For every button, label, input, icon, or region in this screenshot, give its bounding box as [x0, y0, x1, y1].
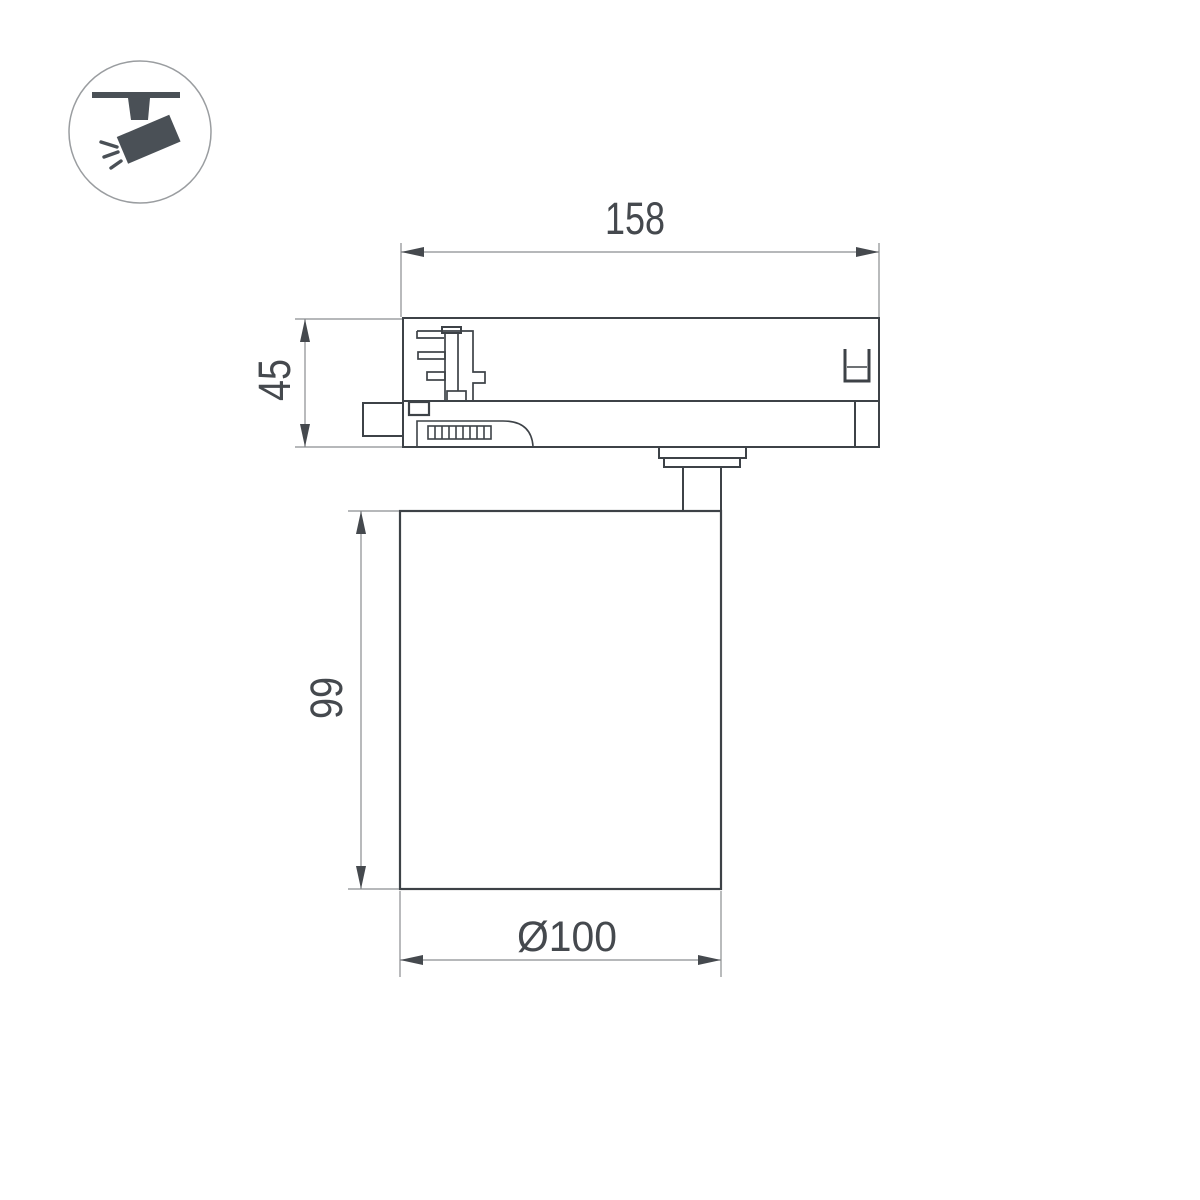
adapter-contact-block: [417, 327, 485, 401]
dimension-adapter-height: 45: [249, 319, 402, 447]
technical-drawing-canvas: 158 45 99 Ø100: [0, 0, 1200, 1200]
arrowhead: [698, 955, 721, 965]
lamp-body: [400, 511, 721, 889]
dimension-body-height: 99: [301, 511, 399, 889]
lamp-stem: [659, 447, 746, 511]
arrowhead: [356, 866, 366, 889]
adapter-lock-box: [363, 403, 403, 436]
adapter-upper-housing: [403, 318, 879, 401]
icon-mount-stem: [128, 98, 150, 120]
contact-prong: [427, 372, 445, 380]
adapter-lower-housing: [403, 401, 879, 447]
contact-prong: [418, 352, 445, 359]
adapter-latch: [409, 402, 429, 415]
dimension-label-width: 158: [605, 193, 665, 244]
dimension-label-body-height: 99: [301, 677, 352, 719]
arrowhead: [356, 511, 366, 534]
arrowhead: [300, 319, 310, 342]
icon-ceiling-bar: [92, 92, 180, 98]
arrowhead: [400, 955, 423, 965]
dimension-body-diameter: Ø100: [400, 891, 721, 977]
arrowhead: [856, 247, 879, 257]
arrowhead: [300, 424, 310, 447]
contact-post-foot: [447, 391, 466, 401]
adapter-clip: [845, 349, 869, 381]
arrowhead: [401, 247, 424, 257]
dimension-label-adapter-height: 45: [249, 359, 300, 401]
dimension-adapter-width: 158: [401, 193, 879, 317]
drawing-page: 158 45 99 Ø100: [0, 0, 1200, 1200]
fixture-outline: [363, 318, 879, 889]
track-spotlight-icon: [69, 61, 211, 203]
contact-post-cap: [442, 327, 461, 333]
dimension-label-body-diameter: Ø100: [517, 913, 617, 961]
adapter-grip: [417, 421, 533, 446]
